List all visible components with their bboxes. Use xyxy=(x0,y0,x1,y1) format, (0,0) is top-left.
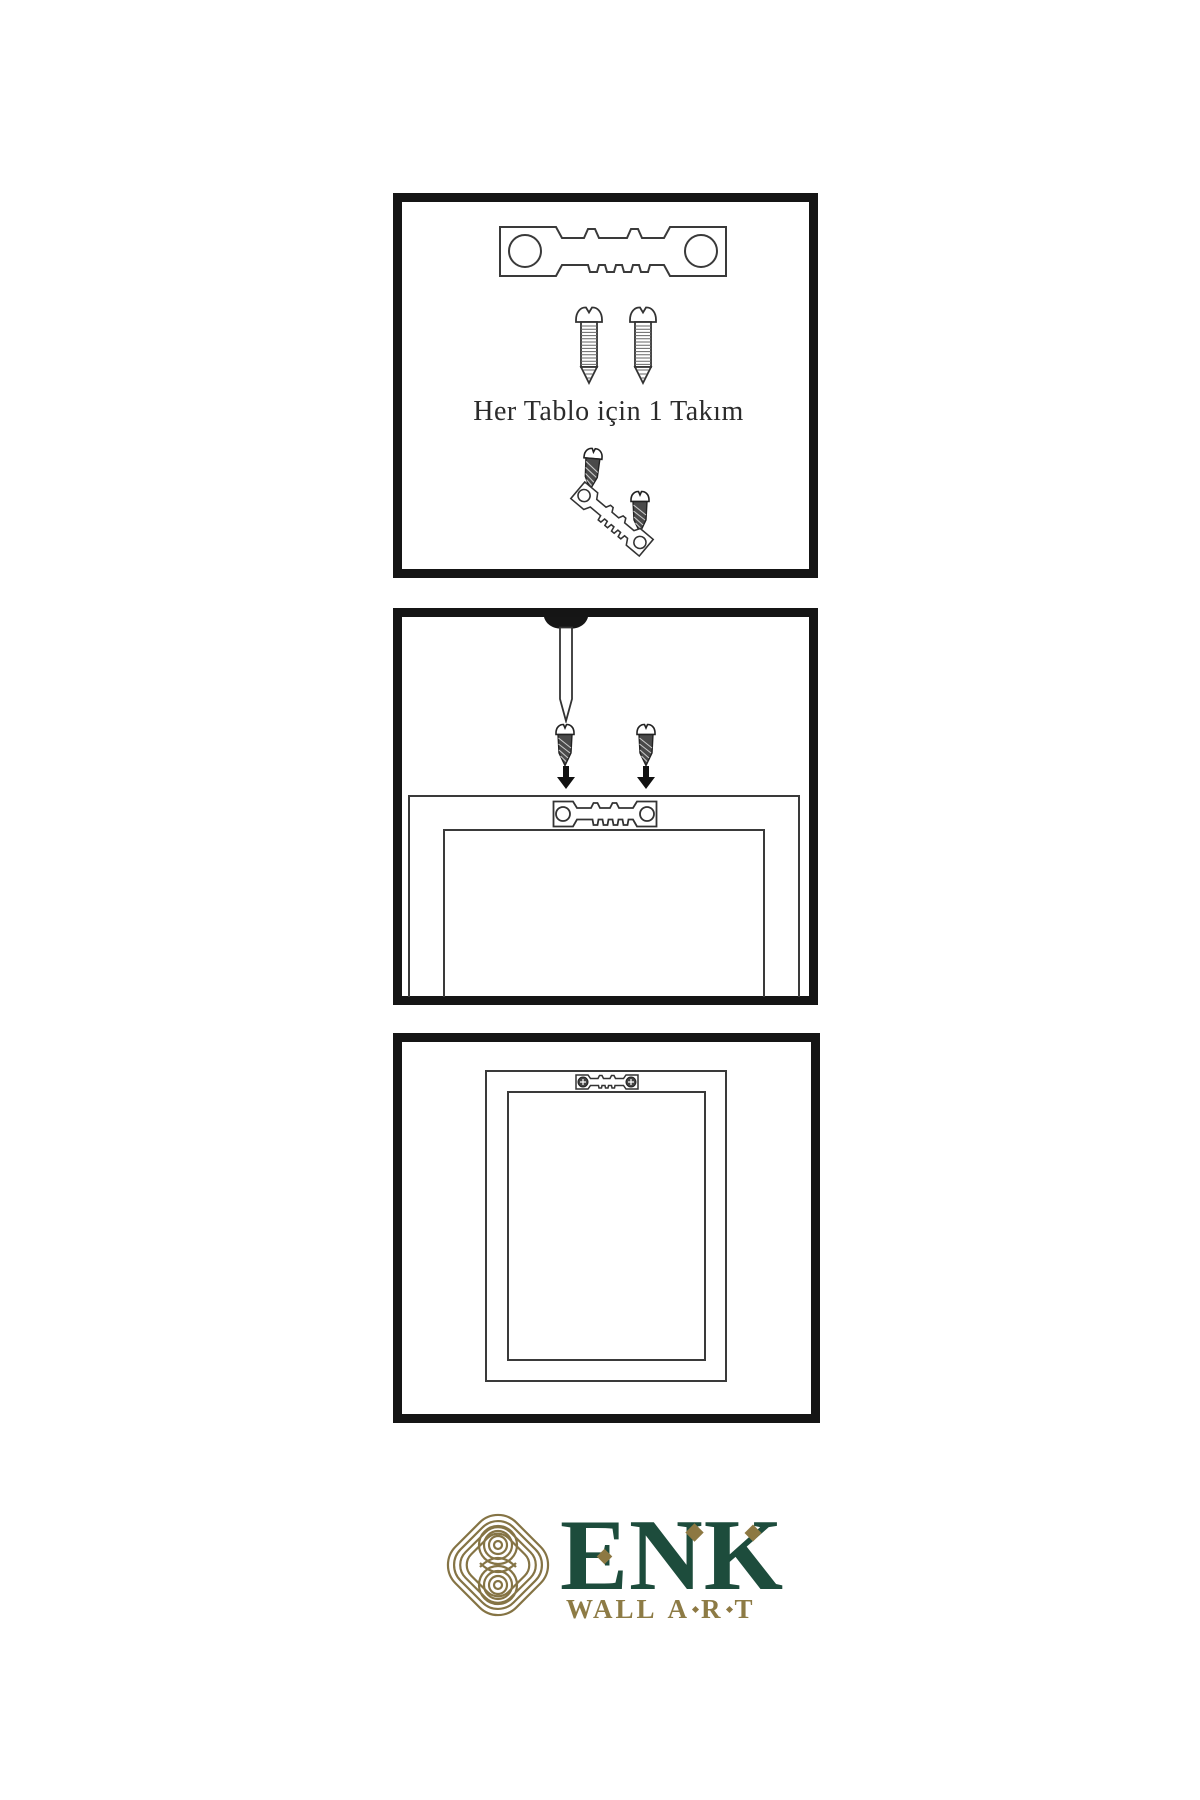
step1-panel: Her Tablo için 1 Takım xyxy=(393,193,818,578)
wall-nail-icon xyxy=(543,617,589,723)
installed-hanger-icon xyxy=(575,1074,639,1090)
sawtooth-hanger-icon xyxy=(552,800,658,828)
step1-caption: Her Tablo için 1 Takım xyxy=(408,396,809,428)
step2-panel xyxy=(393,608,818,1005)
down-arrow-icon xyxy=(636,766,656,790)
step3-panel xyxy=(393,1033,820,1423)
instruction-sheet: Her Tablo için 1 Takım xyxy=(0,0,1200,1800)
dark-screw-icon xyxy=(553,723,577,767)
frame-back-inner xyxy=(443,829,765,997)
subtitle-letter: T xyxy=(735,1594,756,1625)
subtitle-letter: R xyxy=(701,1594,724,1625)
sawtooth-hanger-icon xyxy=(498,225,728,278)
subtitle-word: WALL xyxy=(566,1594,658,1625)
brand-name: ENK xyxy=(560,1505,784,1607)
brand-knot-icon xyxy=(438,1505,558,1625)
frame-back-inner xyxy=(507,1091,706,1361)
screw-icon xyxy=(573,305,605,385)
subtitle-letter: A xyxy=(668,1594,691,1625)
down-arrow-icon xyxy=(556,766,576,790)
brand-subtitle: WALL A R T xyxy=(566,1594,756,1625)
diamond-icon xyxy=(725,1606,732,1613)
screw-icon xyxy=(627,305,659,385)
diamond-icon xyxy=(692,1606,699,1613)
dark-screw-icon xyxy=(634,723,658,767)
